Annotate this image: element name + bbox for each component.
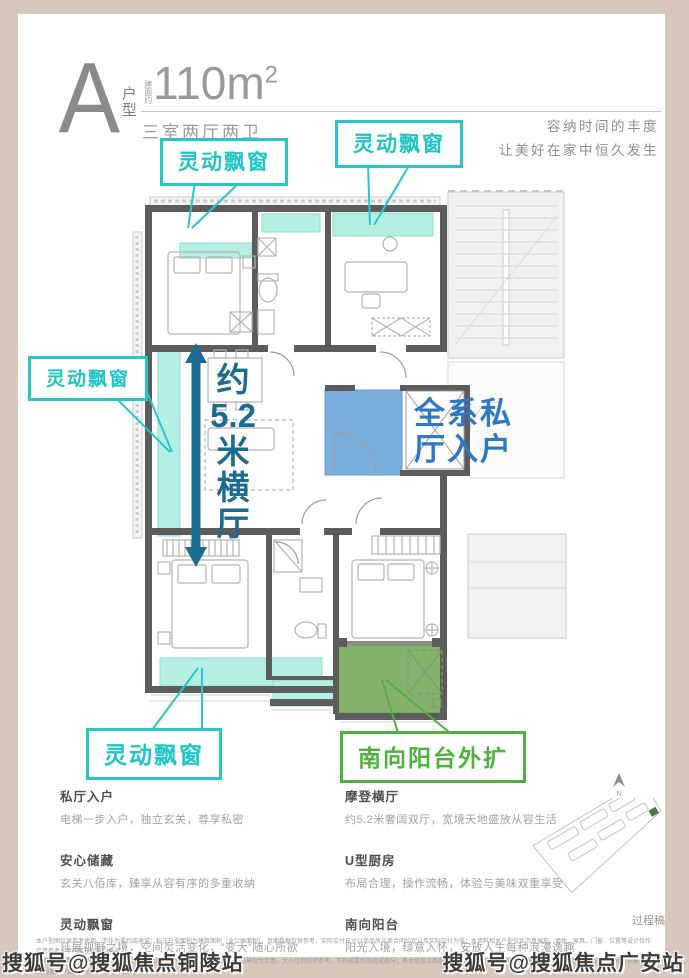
site-plan-diagram [520, 798, 670, 918]
callout-bay-window-left: 灵动飘窗 [28, 356, 148, 401]
hall-dimension-text: 约 5.2 米 横 厅 [206, 362, 260, 542]
private-entry-line-1: 全系私 [414, 396, 513, 432]
callout-bay-window-top-left: 灵动飘窗 [160, 138, 288, 186]
feature-description: 玄关八佰库，臻享从容有序的多重收纳 [60, 875, 340, 891]
bay-window-highlight [333, 213, 433, 236]
hall-char: 约 [206, 362, 260, 398]
private-entry-line-2: 厅入户 [414, 432, 513, 468]
feature-title: 灵动飘窗 [60, 914, 340, 933]
watermark-right: 搜狐号@搜狐焦点广安站 [443, 947, 684, 977]
feature-item: 安心储藏 玄关八佰库，臻享从容有序的多重收纳 [60, 850, 340, 891]
bay-window-highlight [180, 243, 252, 258]
feature-title: 私厅入户 [60, 786, 340, 805]
feature-description: 电梯一步入户，独立玄关，尊享私密 [60, 811, 340, 827]
process-draft-note: 过程稿 [632, 912, 665, 928]
hall-char: 厅 [206, 506, 260, 542]
feature-title: 安心储藏 [60, 850, 340, 869]
feature-item: 私厅入户 电梯一步入户，独立玄关，尊享私密 [60, 786, 340, 827]
callout-balcony-extension: 南向阳台外扩 [340, 731, 526, 783]
callout-bay-window-top-right: 灵动飘窗 [335, 120, 463, 168]
callout-bay-window-bottom: 灵动飘窗 [86, 728, 222, 780]
hall-char: 横 [206, 470, 260, 506]
compass-label: N [608, 791, 630, 798]
hall-char: 米 [206, 434, 260, 470]
balcony-highlight [338, 645, 444, 713]
hall-char: 5.2 [206, 398, 260, 434]
north-arrow-icon [608, 772, 630, 788]
watermark-left: 搜狐号@搜狐焦点铜陵站 [2, 947, 243, 977]
compass: N [608, 772, 630, 798]
bay-window-highlight [262, 214, 320, 232]
private-entry-label: 全系私 厅入户 [414, 396, 513, 467]
